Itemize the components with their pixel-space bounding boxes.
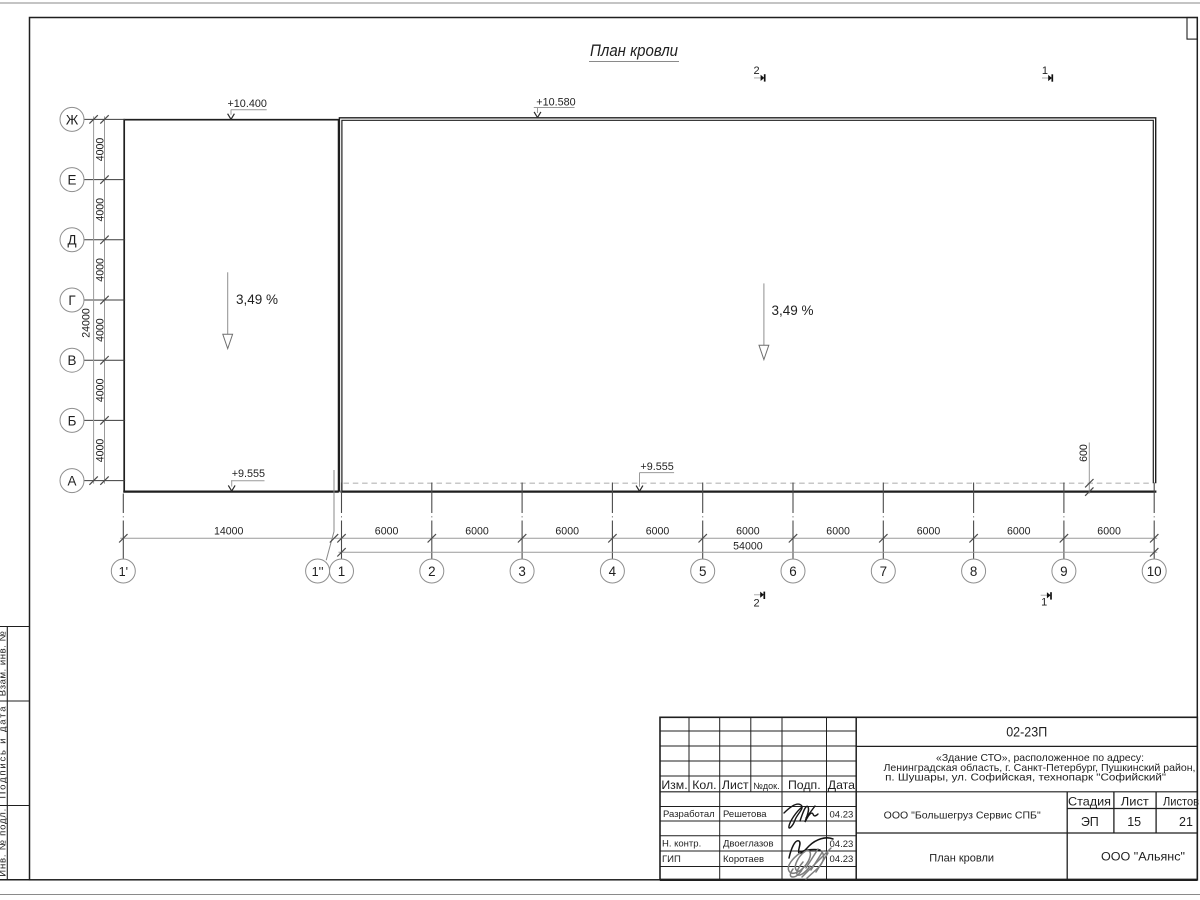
svg-text:6000: 6000 — [465, 526, 489, 538]
svg-text:2: 2 — [753, 65, 759, 77]
svg-text:3: 3 — [518, 564, 525, 579]
svg-text:4000: 4000 — [95, 439, 107, 463]
svg-text:А: А — [68, 474, 77, 489]
svg-text:1: 1 — [338, 564, 345, 579]
svg-text:4000: 4000 — [95, 378, 107, 402]
svg-text:+9.555: +9.555 — [232, 468, 265, 480]
svg-text:600: 600 — [1078, 444, 1090, 462]
svg-text:7: 7 — [880, 564, 887, 579]
svg-text:04.23: 04.23 — [830, 854, 854, 865]
svg-text:План кровли: План кровли — [590, 41, 678, 60]
svg-text:Дата: Дата — [828, 778, 855, 792]
svg-text:9: 9 — [1060, 564, 1067, 579]
svg-text:+9.555: +9.555 — [640, 461, 673, 473]
svg-text:План кровли: План кровли — [929, 852, 994, 864]
svg-text:04.23: 04.23 — [830, 839, 854, 850]
svg-text:ООО "Большегруз Сервис СПБ": ООО "Большегруз Сервис СПБ" — [884, 810, 1041, 822]
svg-text:Н. контр.: Н. контр. — [662, 838, 701, 849]
svg-text:1'': 1'' — [312, 565, 324, 579]
svg-text:6000: 6000 — [555, 526, 579, 538]
svg-text:1: 1 — [1041, 597, 1047, 609]
svg-text:1': 1' — [119, 565, 128, 579]
svg-text:15: 15 — [1127, 815, 1141, 829]
svg-text:Г: Г — [68, 293, 75, 308]
svg-text:14000: 14000 — [214, 526, 244, 538]
svg-text:10: 10 — [1147, 564, 1162, 579]
svg-text:6000: 6000 — [375, 526, 399, 538]
svg-text:04.23: 04.23 — [830, 809, 854, 820]
svg-text:3,49 %: 3,49 % — [772, 303, 814, 318]
svg-text:Стадия: Стадия — [1068, 794, 1111, 808]
svg-text:6000: 6000 — [736, 526, 760, 538]
svg-text:2: 2 — [428, 564, 435, 579]
svg-text:Разработал: Разработал — [663, 809, 715, 820]
svg-text:6000: 6000 — [646, 526, 670, 538]
svg-text:6: 6 — [789, 564, 796, 579]
svg-text:В: В — [68, 353, 77, 368]
svg-text:24000: 24000 — [81, 308, 93, 338]
svg-text:Коротаев: Коротаев — [723, 854, 764, 865]
svg-text:Взам. инв. №: Взам. инв. № — [0, 631, 9, 696]
svg-text:4: 4 — [609, 564, 617, 579]
svg-text:+10.400: +10.400 — [228, 98, 267, 110]
svg-text:Б: Б — [68, 413, 77, 428]
svg-text:Лист: Лист — [722, 778, 749, 792]
svg-text:Кол.: Кол. — [692, 778, 716, 792]
svg-text:Листов: Листов — [1163, 794, 1199, 808]
svg-text:5: 5 — [699, 564, 706, 579]
svg-text:1: 1 — [1042, 65, 1048, 77]
svg-text:54000: 54000 — [733, 540, 763, 552]
svg-text:Лист: Лист — [1121, 794, 1150, 808]
svg-text:ЭП: ЭП — [1081, 815, 1099, 829]
svg-text:п. Шушары, ул. Софийская, техн: п. Шушары, ул. Софийская, технопарк "Соф… — [885, 772, 1166, 784]
svg-text:02-23П: 02-23П — [1006, 724, 1047, 740]
svg-text:Д: Д — [67, 233, 76, 248]
svg-text:Ж: Ж — [66, 112, 79, 127]
svg-text:6000: 6000 — [917, 526, 941, 538]
svg-text:2: 2 — [753, 597, 759, 609]
svg-text:4000: 4000 — [95, 138, 107, 162]
svg-text:№док.: №док. — [753, 781, 779, 791]
svg-text:6000: 6000 — [826, 526, 850, 538]
svg-text:8: 8 — [970, 564, 977, 579]
svg-text:6000: 6000 — [1007, 526, 1031, 538]
svg-text:+10.580: +10.580 — [536, 96, 575, 108]
svg-text:Двоеглазов: Двоеглазов — [723, 838, 774, 849]
svg-text:ООО "Альянс": ООО "Альянс" — [1101, 850, 1185, 864]
svg-text:3,49 %: 3,49 % — [236, 292, 278, 307]
svg-text:Подп.: Подп. — [788, 778, 821, 792]
svg-text:Изм.: Изм. — [661, 778, 687, 792]
svg-text:4000: 4000 — [95, 258, 107, 282]
svg-text:4000: 4000 — [95, 198, 107, 222]
svg-text:4000: 4000 — [95, 318, 107, 342]
svg-text:ГИП: ГИП — [662, 854, 681, 865]
svg-text:Решетова: Решетова — [723, 809, 767, 820]
svg-text:Инв. № подл.: Инв. № подл. — [0, 809, 9, 877]
svg-text:21: 21 — [1179, 815, 1193, 829]
svg-text:Е: Е — [68, 173, 77, 188]
svg-text:6000: 6000 — [1097, 526, 1121, 538]
